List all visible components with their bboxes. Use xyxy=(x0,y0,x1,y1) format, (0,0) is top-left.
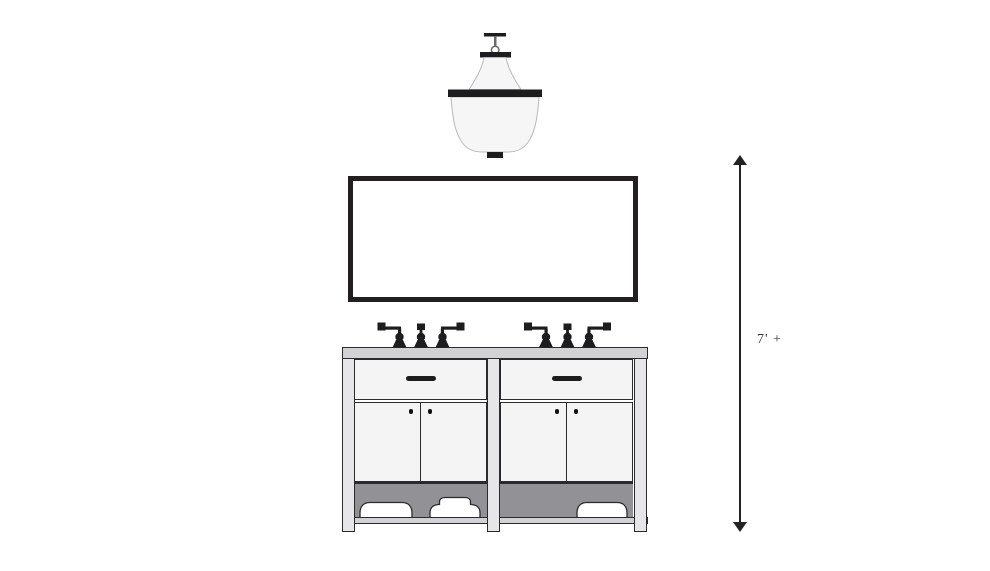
towels-right xyxy=(500,482,633,519)
drawer-handle xyxy=(552,376,582,381)
door-divider xyxy=(566,403,568,481)
pendant-lower-shade xyxy=(448,90,542,159)
vanity-leg-right xyxy=(634,358,647,532)
faucet-sets xyxy=(370,320,620,348)
open-shelf-recess-left xyxy=(354,482,487,517)
open-shelf-recess-right xyxy=(500,482,633,517)
cabinet-doors-right xyxy=(500,402,633,482)
stacked-towels-icon xyxy=(430,498,480,520)
arrow-down-icon xyxy=(733,522,747,532)
countertop xyxy=(342,347,648,359)
pendant-light-icon xyxy=(440,22,550,162)
vanity-unit-right xyxy=(500,359,633,517)
door-knob xyxy=(574,409,579,414)
widespread-faucet-set-icon xyxy=(378,323,465,348)
height-dimension-arrow xyxy=(739,164,741,523)
framed-mirror xyxy=(348,176,638,302)
bathroom-vanity-elevation: 7' + xyxy=(0,0,990,571)
cabinet-doors-left xyxy=(354,402,487,482)
height-dimension-label: 7' + xyxy=(757,332,782,348)
vanity-leg-left xyxy=(342,358,355,532)
vanity-leg-center xyxy=(487,358,500,532)
drawer-left xyxy=(354,359,487,400)
pendant-upper-shade xyxy=(469,52,521,90)
pendant-ceiling-mount xyxy=(484,33,506,54)
door-knob xyxy=(428,409,433,414)
drawer-handle xyxy=(406,376,436,381)
door-divider xyxy=(420,403,422,481)
drawer-right xyxy=(500,359,633,400)
widespread-faucet-set-icon xyxy=(524,323,611,348)
vanity-unit-left xyxy=(354,359,487,517)
door-knob xyxy=(555,409,560,414)
door-knob xyxy=(409,409,414,414)
towels-left xyxy=(354,482,487,519)
